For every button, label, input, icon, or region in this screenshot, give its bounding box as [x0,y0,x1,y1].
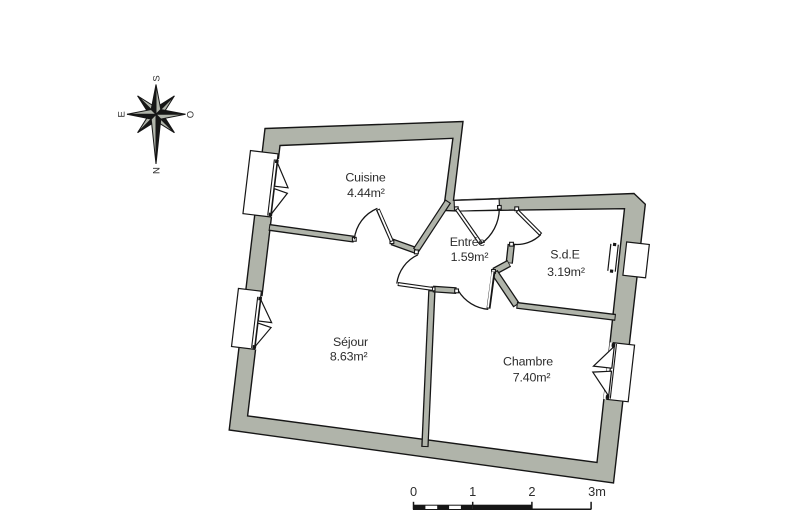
svg-text:E: E [117,111,128,117]
svg-text:2: 2 [528,484,535,499]
svg-text:S.d.E: S.d.E [550,248,580,262]
svg-text:O: O [186,111,197,118]
svg-text:Cuisine: Cuisine [345,170,386,184]
svg-text:S: S [152,75,163,81]
svg-text:1: 1 [469,484,476,499]
svg-text:7.40m²: 7.40m² [513,371,551,385]
svg-text:3m: 3m [588,484,606,499]
svg-text:8.63m²: 8.63m² [330,350,368,364]
svg-text:0: 0 [410,484,417,499]
svg-text:Chambre: Chambre [503,355,553,369]
svg-text:N: N [151,167,162,174]
svg-text:3.19m²: 3.19m² [547,265,585,279]
svg-text:4.44m²: 4.44m² [347,186,385,200]
svg-text:Séjour: Séjour [333,335,368,349]
svg-text:1.59m²: 1.59m² [451,250,489,264]
svg-text:Entrée: Entrée [450,235,486,249]
